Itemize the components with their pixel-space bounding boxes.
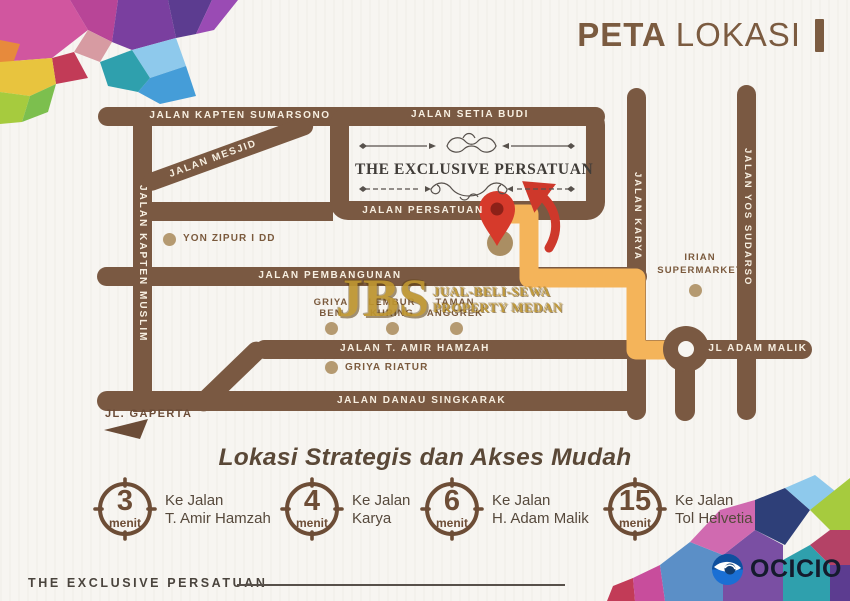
title-accent-bar xyxy=(815,19,824,52)
watermark-abbr: JBS xyxy=(336,274,429,322)
landmark-dot-taman-anggrek xyxy=(450,322,463,335)
badge-15-menit: 15 menit xyxy=(603,477,667,546)
watermark-lines: JUAL-BELI-SEWA PROPERTY MEDAN xyxy=(433,284,563,316)
landmark-dot-griya-riatur xyxy=(325,361,338,374)
property-ornament: THE EXCLUSIVE PERSATUAN xyxy=(355,129,583,209)
road-label-jalan-mesjid: JALAN MESJID xyxy=(168,138,259,180)
badge-4-label: Ke Jalan Karya xyxy=(352,492,410,528)
badge-4-menit: 4 menit xyxy=(280,477,344,546)
badge-3-label: Ke Jalan T. Amir Hamzah xyxy=(165,492,271,528)
road-label-amir-hamzah: JALAN T. AMIR HAMZAH xyxy=(340,343,490,354)
location-map-poster: PETA LOKASI JALAN MESJID JALAN KAPTEN SU… xyxy=(0,0,850,601)
badge-6-menit: 6 menit xyxy=(420,477,484,546)
pin-base-dot xyxy=(487,230,513,256)
gaperta-arrow-icon xyxy=(100,417,155,441)
road-label-kapten-muslim: JALAN KAPTEN MUSLIM xyxy=(137,185,148,342)
ornament-flourish-top xyxy=(355,129,583,155)
page-title-bold: PETA xyxy=(577,16,667,54)
landmark-label-yon-zipur: YON ZIPUR I DD xyxy=(183,233,276,244)
footer-brand: THE EXCLUSIVE PERSATUAN xyxy=(28,576,267,590)
watermark: JBS JUAL-BELI-SEWA PROPERTY MEDAN xyxy=(336,274,563,322)
landmark-dot-irian-supermarket xyxy=(689,284,702,297)
page-title: PETA LOKASI xyxy=(577,16,824,54)
badge-15-label: Ke Jalan Tol Helvetia xyxy=(675,492,753,528)
road-label-karya: JALAN KARYA xyxy=(632,172,643,261)
footer-divider xyxy=(237,584,565,586)
road-jalan-persatuan-west xyxy=(133,202,333,221)
road-label-setia-budi: JALAN SETIA BUDI xyxy=(380,109,560,120)
ocicio-logo-text: OCICIO xyxy=(750,555,842,584)
ocicio-globe-icon xyxy=(712,554,743,585)
badge-6-label: Ke Jalan H. Adam Malik xyxy=(492,492,589,528)
ornament-flourish-bottom xyxy=(355,180,583,204)
road-label-adam-malik: JL ADAM MALIK xyxy=(683,343,833,354)
landmark-label-griya-riatur: GRIYA RIATUR xyxy=(345,362,428,373)
road-label-danau-singkarak: JALAN DANAU SINGKARAK xyxy=(337,395,487,406)
badge-3-menit: 3 menit xyxy=(93,477,157,546)
property-name: THE EXCLUSIVE PERSATUAN xyxy=(355,161,583,179)
tagline: Lokasi Strategis dan Akses Mudah xyxy=(0,444,850,472)
landmark-dot-yon-zipur xyxy=(163,233,176,246)
road-label-kapten-sumarsono: JALAN KAPTEN SUMARSONO xyxy=(140,110,340,121)
ocicio-logo: OCICIO xyxy=(712,554,842,585)
page-title-light: LOKASI xyxy=(676,16,801,54)
landmark-label-irian-supermarket: IRIAN SUPERMARKET xyxy=(645,251,755,277)
